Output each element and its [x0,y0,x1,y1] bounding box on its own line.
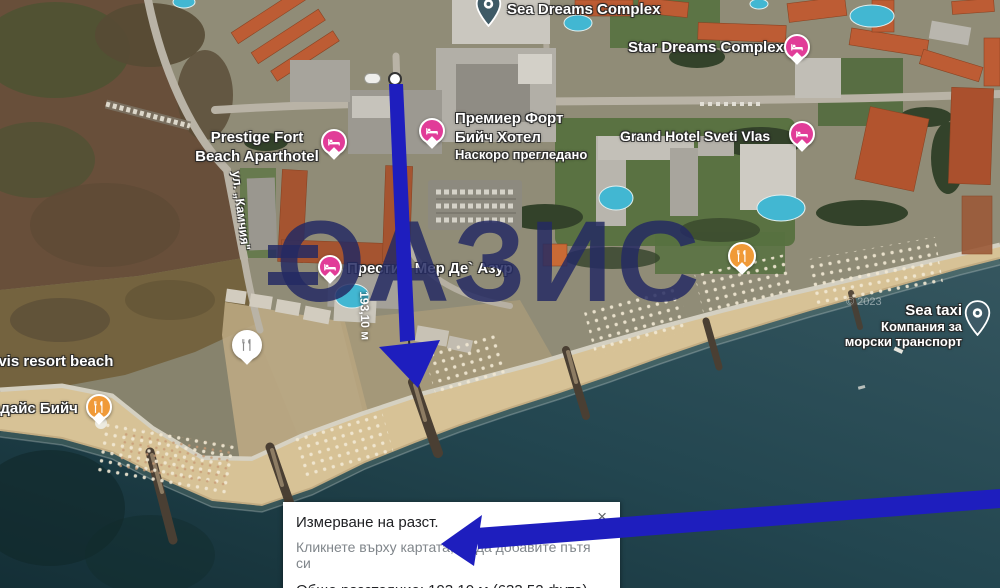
sea-dreams-label[interactable]: Sea Dreams Complex [507,0,660,19]
close-icon[interactable]: × [593,505,611,529]
paradise-beach-label[interactable]: адайс Бийч [0,399,78,418]
street-number-badge [364,73,381,84]
paradise-beach-restaurant-pin[interactable] [86,394,112,420]
sea-taxi-pin[interactable] [964,300,991,336]
google-maps-satellite-view: 193,10 м Sea Dreams Complex Star Dreams … [0,0,1000,588]
imagery-copyright: © 2023 [846,296,882,308]
prestige-fort-hotel-pin[interactable] [321,129,347,155]
premier-fort-hotel-pin[interactable] [419,118,445,144]
bed-icon [425,124,439,138]
recently-viewed-label: Наскоро прегледано [455,147,587,162]
dialog-hint: Кликнете върху картата, за да добавите п… [296,539,606,571]
measure-distance-dialog: × Измерване на разст. Кликнете върху кар… [283,502,620,588]
nevis-resort-beach-label[interactable]: evis resort beach [0,352,113,371]
watermark-logo-bar [268,272,318,285]
watermark-logo-bar [268,245,318,258]
grand-hotel-pin[interactable] [789,121,815,147]
beach-restaurant-pin[interactable] [728,242,756,270]
seafront-restaurant-pin[interactable] [232,330,262,360]
sea-taxi-label[interactable]: Sea taxi Компания за морски транспорт [845,303,962,349]
sea-dreams-pin[interactable] [475,0,502,27]
measure-start-point[interactable] [388,72,402,86]
oasis-watermark: ОАЗИС [276,205,703,320]
fork-knife-icon [735,249,749,263]
bed-icon [795,127,809,141]
bed-icon [327,135,341,149]
star-dreams-label[interactable]: Star Dreams Complex [628,38,783,57]
bed-icon [790,40,804,54]
fork-knife-icon [92,400,106,414]
dialog-title: Измерване на разст. [296,514,606,531]
grand-hotel-label[interactable]: Grand Hotel Sveti Vlas [620,127,770,146]
premier-fort-label[interactable]: Премиер Форт Бийч Хотел Наскоро прегледа… [455,109,587,162]
star-dreams-hotel-pin[interactable] [784,34,810,60]
fork-knife-icon [240,338,254,352]
dialog-total-distance: Общо разстояние: 193,10 м (633,52 фута) [296,582,606,588]
